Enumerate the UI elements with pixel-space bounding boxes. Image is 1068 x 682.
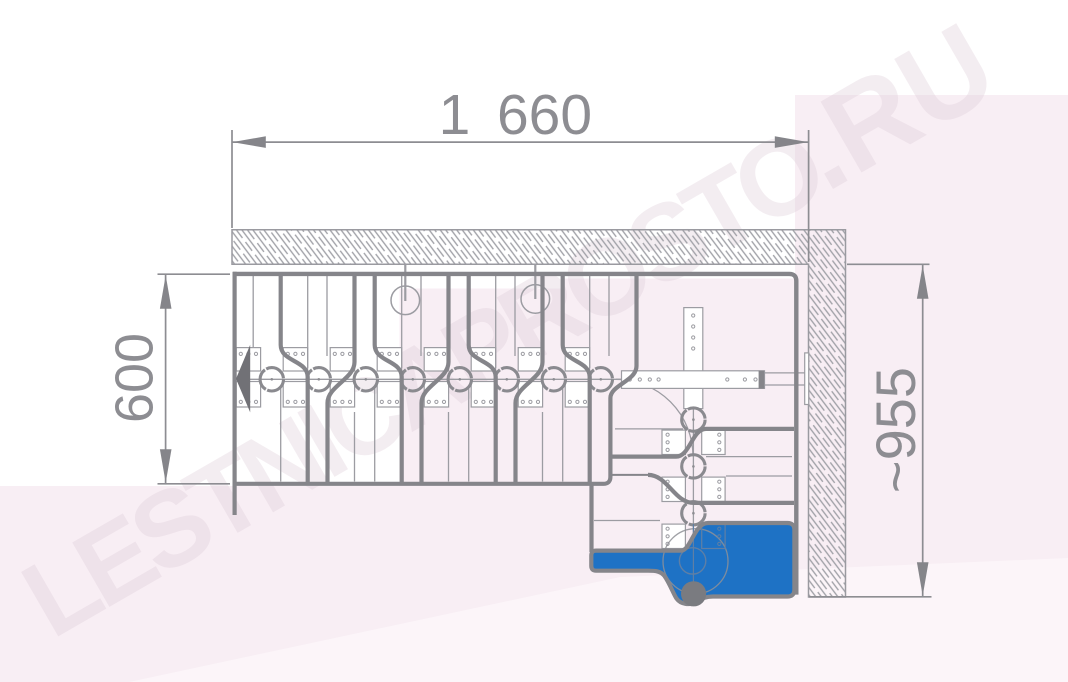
svg-text:600: 600 [105,333,165,423]
svg-text:~955: ~955 [864,367,927,493]
svg-text:1: 1 [439,83,471,147]
svg-text:660: 660 [497,83,592,147]
